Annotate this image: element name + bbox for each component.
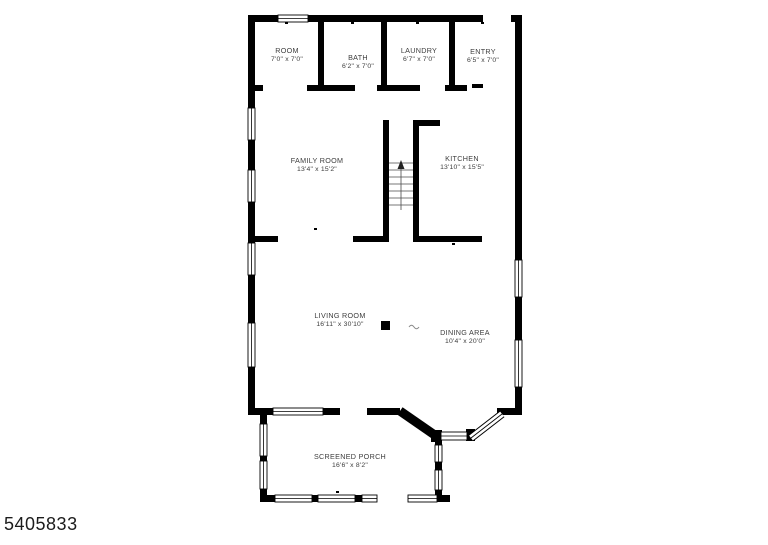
room-dimensions: 7'0" x 7'0"	[271, 55, 303, 64]
window	[362, 495, 377, 502]
room-name: FAMILY ROOM	[291, 156, 344, 165]
window	[248, 243, 255, 275]
room-dimensions: 6'5" x 7'0"	[467, 56, 499, 65]
bay-bottom-window	[441, 432, 467, 440]
window	[275, 495, 312, 502]
room-dimensions: 16'11" x 30'10"	[314, 320, 365, 329]
window	[435, 470, 442, 490]
room-label-living-room: LIVING ROOM 16'11" x 30'10"	[314, 311, 365, 329]
listing-id: 5405833	[4, 514, 78, 535]
squiggle-symbol	[409, 325, 419, 329]
room-label-laundry: LAUNDRY 6'7" x 7'0"	[401, 46, 437, 64]
column-marker	[381, 321, 390, 330]
room-name: LAUNDRY	[401, 46, 437, 55]
room-label-kitchen: KITCHEN 13'10" x 15'5"	[440, 154, 484, 172]
window	[273, 408, 323, 415]
room-label-bath: BATH 6'2" x 7'0"	[342, 53, 374, 71]
room-dimensions: 13'10" x 15'5"	[440, 163, 484, 172]
room-name: LIVING ROOM	[314, 311, 365, 320]
room-dimensions: 6'7" x 7'0"	[401, 55, 437, 64]
floorplan-page: ROOM 7'0" x 7'0" BATH 6'2" x 7'0" LAUNDR…	[0, 0, 768, 545]
room-label-family-room: FAMILY ROOM 13'4" x 15'2"	[291, 156, 344, 174]
room-label-room: ROOM 7'0" x 7'0"	[271, 46, 303, 64]
room-name: ENTRY	[467, 47, 499, 56]
staircase	[389, 160, 413, 210]
window	[515, 340, 522, 387]
window	[278, 15, 308, 22]
stairs-up-arrow-icon	[398, 160, 405, 169]
room-name: SCREENED PORCH	[314, 452, 386, 461]
window	[318, 495, 355, 502]
room-name: ROOM	[271, 46, 303, 55]
room-dimensions: 6'2" x 7'0"	[342, 62, 374, 71]
window	[408, 495, 437, 502]
room-dimensions: 16'6" x 8'2"	[314, 461, 386, 470]
window	[248, 170, 255, 202]
window	[515, 260, 522, 297]
room-name: BATH	[342, 53, 374, 62]
window	[260, 424, 267, 456]
room-name: KITCHEN	[440, 154, 484, 163]
window	[248, 323, 255, 367]
room-label-dining-area: DINING AREA 10'4" x 20'0"	[440, 328, 490, 346]
room-label-screened-porch: SCREENED PORCH 16'6" x 8'2"	[314, 452, 386, 470]
window	[248, 108, 255, 140]
bay-diagonal-wall	[400, 411, 439, 438]
room-dimensions: 10'4" x 20'0"	[440, 337, 490, 346]
window	[435, 445, 442, 462]
room-name: DINING AREA	[440, 328, 490, 337]
room-dimensions: 13'4" x 15'2"	[291, 165, 344, 174]
window	[260, 461, 267, 489]
room-label-entry: ENTRY 6'5" x 7'0"	[467, 47, 499, 65]
bay-diagonal-window	[471, 414, 502, 438]
